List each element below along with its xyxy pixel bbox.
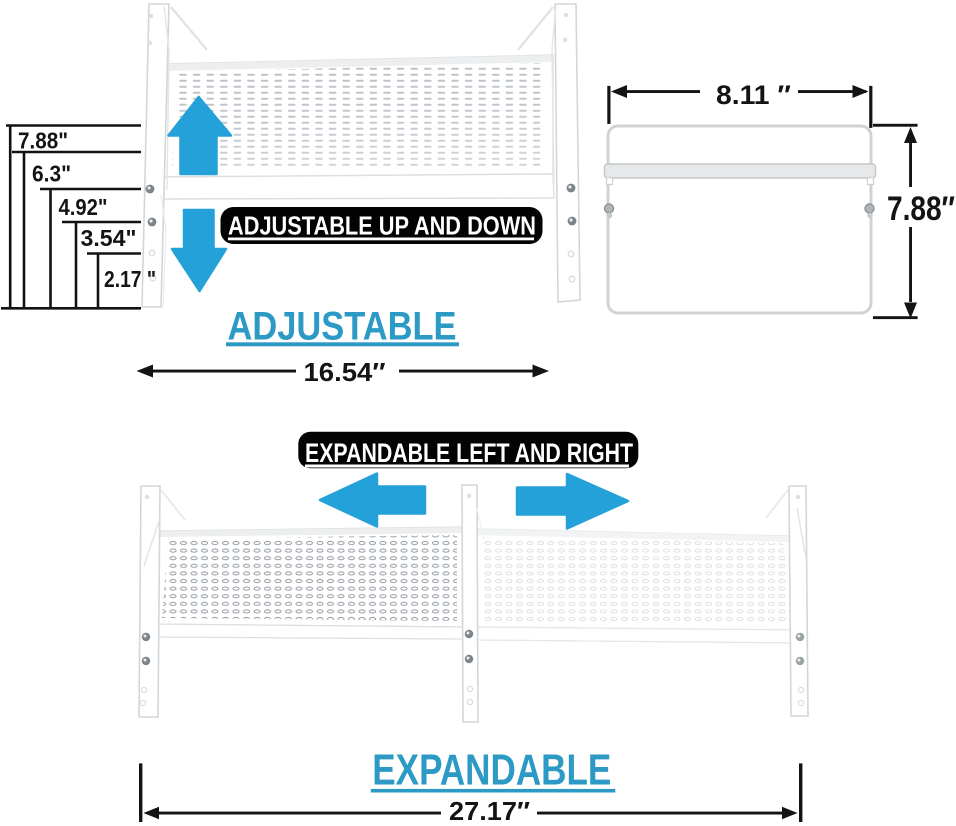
svg-text:16.54″: 16.54″: [304, 357, 386, 387]
svg-text:8.11 ″: 8.11 ″: [716, 80, 791, 110]
svg-text:27.17″: 27.17″: [449, 796, 530, 826]
svg-text:7.88″: 7.88″: [887, 190, 955, 228]
svg-text:ADJUSTABLE: ADJUSTABLE: [228, 304, 457, 348]
svg-text:3.54": 3.54": [81, 225, 137, 251]
svg-text:EXPANDABLE LEFT AND RIGHT: EXPANDABLE LEFT AND RIGHT: [305, 438, 633, 468]
svg-text:4.92": 4.92": [59, 194, 108, 220]
svg-text:EXPANDABLE: EXPANDABLE: [372, 747, 611, 795]
svg-text:6.3": 6.3": [32, 161, 71, 187]
svg-text:ADJUSTABLE UP AND DOWN: ADJUSTABLE UP AND DOWN: [228, 211, 536, 241]
svg-text:2.17 ": 2.17 ": [104, 266, 156, 292]
svg-text:7.88": 7.88": [18, 128, 68, 154]
